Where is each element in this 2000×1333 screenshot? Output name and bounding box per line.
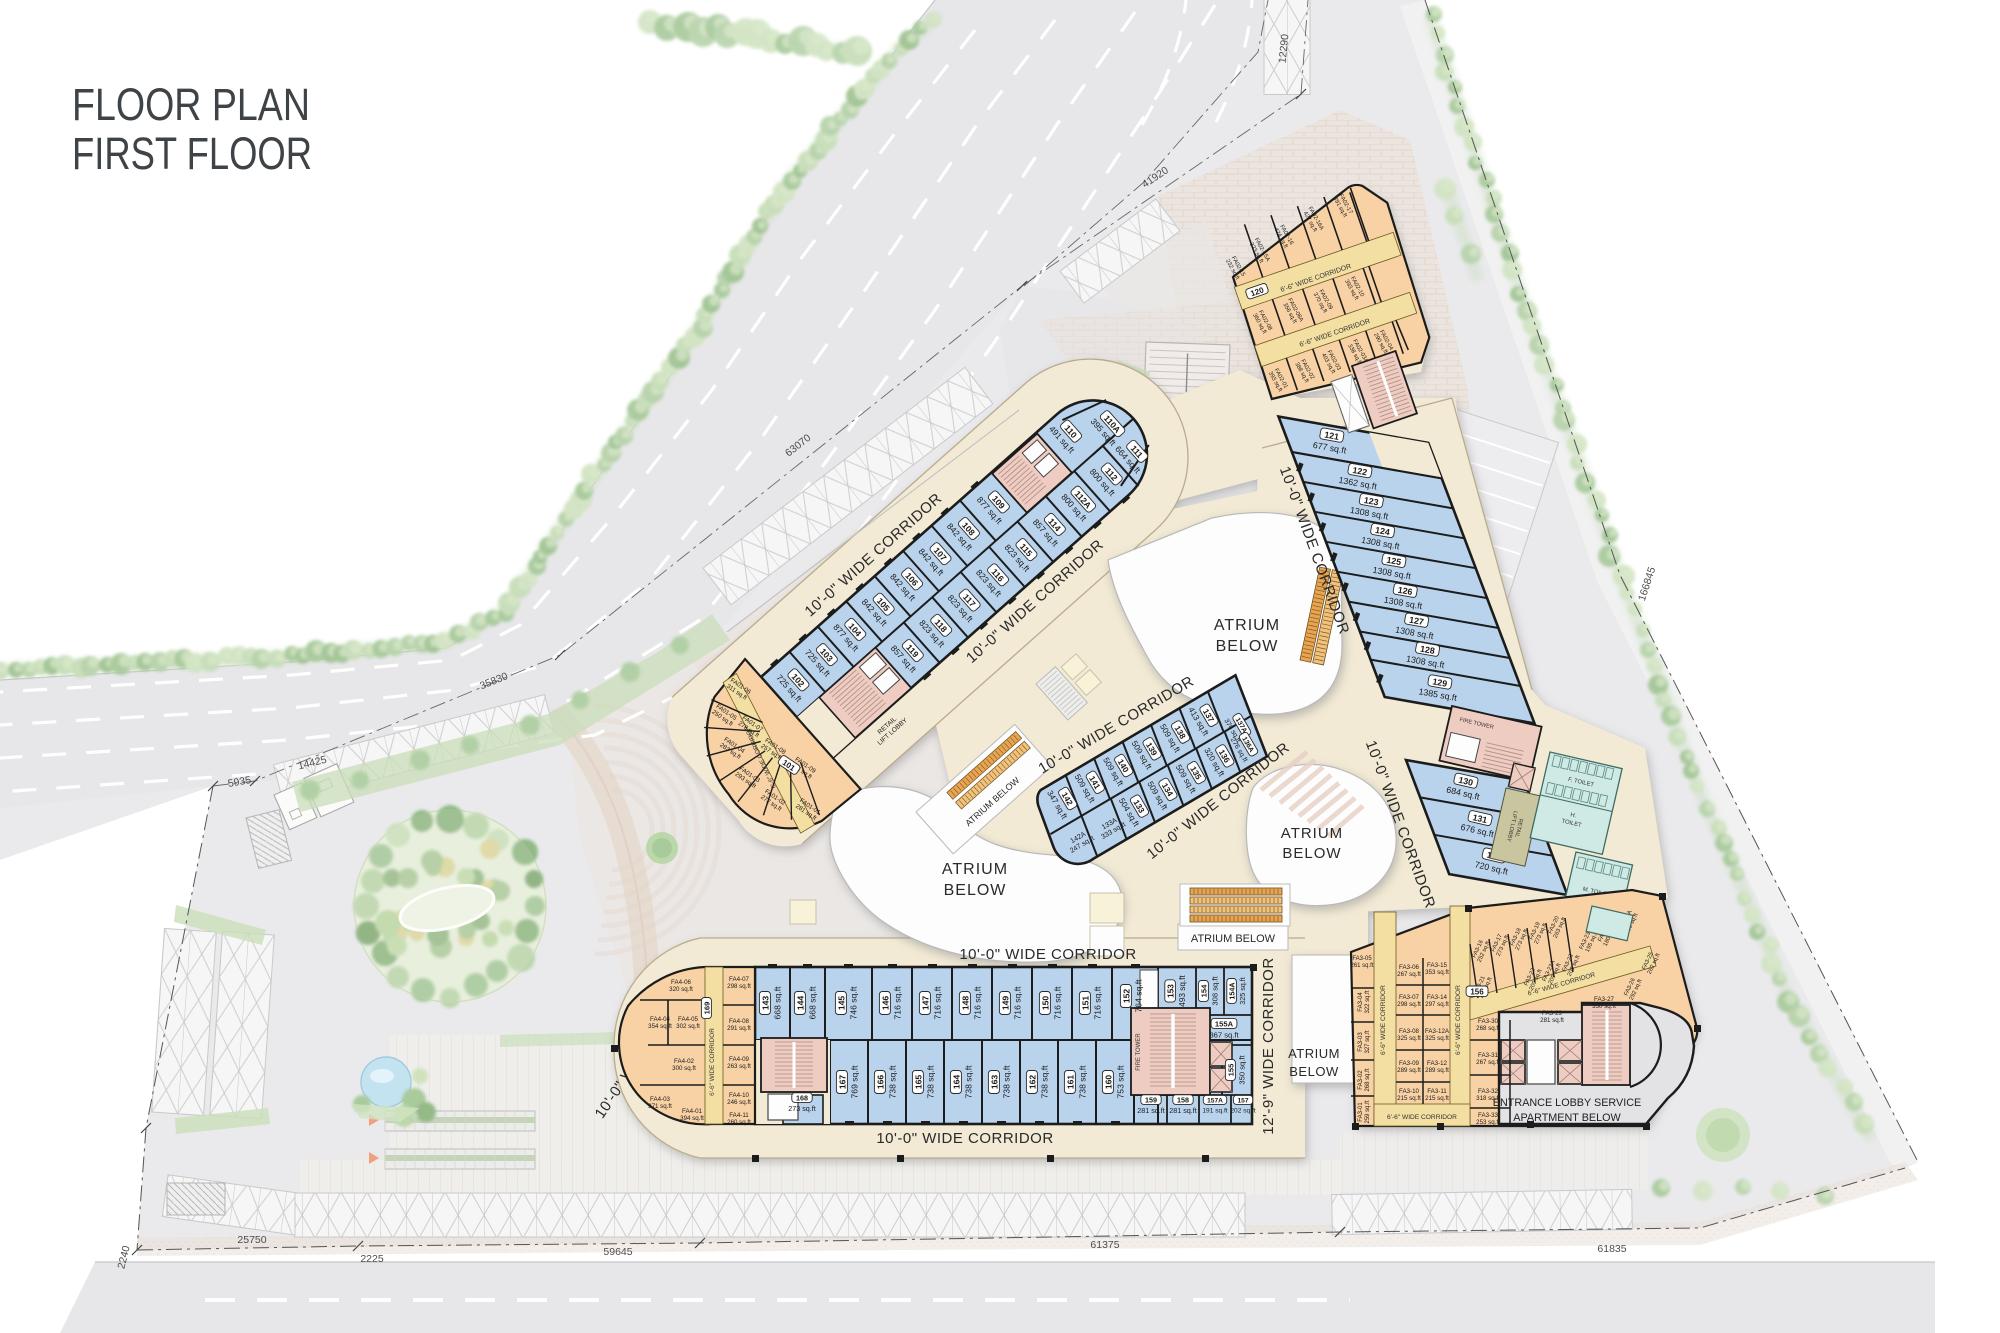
svg-text:297 sq.ft: 297 sq.ft (1425, 1001, 1449, 1008)
svg-text:155A: 155A (1215, 1019, 1234, 1028)
svg-text:FA3-14: FA3-14 (1427, 994, 1448, 1001)
svg-text:148: 148 (960, 996, 970, 1011)
svg-text:267 sq.ft: 267 sq.ft (1397, 971, 1421, 978)
svg-text:716 sq.ft: 716 sq.ft (972, 986, 982, 1020)
svg-text:FA3-15: FA3-15 (1427, 962, 1448, 969)
svg-text:FA3-32: FA3-32 (1478, 1088, 1499, 1095)
svg-text:268 sq.ft: 268 sq.ft (1365, 1068, 1371, 1091)
svg-text:668 sq.ft: 668 sq.ft (807, 986, 817, 1020)
svg-text:156: 156 (1470, 987, 1484, 996)
svg-text:668 sq.ft: 668 sq.ft (772, 986, 782, 1020)
svg-text:350 sq.ft: 350 sq.ft (1592, 1003, 1616, 1010)
svg-text:273 sq.ft: 273 sq.ft (788, 1104, 816, 1113)
svg-text:291 sq.ft: 291 sq.ft (727, 1025, 751, 1032)
svg-text:FA4-10: FA4-10 (729, 1092, 750, 1099)
svg-text:493 sq.ft: 493 sq.ft (1178, 975, 1187, 1007)
svg-text:157: 157 (1237, 1097, 1248, 1104)
svg-text:ATRIUM: ATRIUM (1281, 825, 1343, 842)
svg-text:738 sq.ft: 738 sq.ft (1001, 1065, 1011, 1099)
svg-text:769 sq.ft: 769 sq.ft (849, 1065, 859, 1099)
svg-text:10'-0" WIDE CORRIDOR: 10'-0" WIDE CORRIDOR (959, 946, 1136, 963)
svg-text:61835: 61835 (1597, 1243, 1626, 1255)
svg-text:BELOW: BELOW (1289, 1064, 1339, 1079)
svg-text:302 sq.ft: 302 sq.ft (676, 1023, 700, 1030)
svg-text:738 sq.ft: 738 sq.ft (1039, 1065, 1049, 1099)
svg-text:6'-6" WIDE CORRIDOR: 6'-6" WIDE CORRIDOR (1380, 985, 1387, 1055)
svg-text:158: 158 (1177, 1095, 1189, 1104)
svg-text:215 sq.ft: 215 sq.ft (1397, 1095, 1421, 1102)
svg-text:FA3-03: FA3-03 (1358, 1032, 1364, 1052)
svg-text:159: 159 (1145, 1095, 1157, 1104)
svg-text:353 sq.ft: 353 sq.ft (1425, 969, 1449, 976)
svg-text:716 sq.ft: 716 sq.ft (892, 986, 902, 1020)
svg-text:281 sq.ft: 281 sq.ft (1137, 1106, 1165, 1115)
svg-text:327 sq.ft: 327 sq.ft (1365, 1030, 1371, 1053)
svg-text:144: 144 (795, 996, 805, 1011)
svg-text:738 sq.ft: 738 sq.ft (925, 1065, 935, 1099)
svg-text:163: 163 (989, 1075, 999, 1090)
svg-text:FA3-01: FA3-01 (1358, 1102, 1364, 1122)
svg-text:746 sq.ft: 746 sq.ft (848, 986, 858, 1020)
svg-text:146: 146 (880, 996, 890, 1011)
svg-text:157A: 157A (1207, 1097, 1223, 1104)
svg-text:FIRE TOWER: FIRE TOWER (1136, 1033, 1142, 1071)
svg-text:FA4-08: FA4-08 (729, 1018, 750, 1025)
svg-text:FA4-05: FA4-05 (678, 1016, 699, 1023)
svg-text:6'-6" WIDE CORRIDOR: 6'-6" WIDE CORRIDOR (709, 1028, 716, 1096)
svg-text:FIRST FLOOR: FIRST FLOOR (72, 128, 312, 179)
svg-text:259 sq.ft: 259 sq.ft (1365, 1100, 1371, 1123)
svg-text:154A: 154A (1227, 982, 1236, 999)
svg-text:155: 155 (1226, 1063, 1235, 1076)
svg-text:716 sq.ft: 716 sq.ft (1012, 986, 1022, 1020)
svg-text:169: 169 (702, 1002, 711, 1015)
svg-text:367 sq.ft: 367 sq.ft (1209, 1030, 1239, 1039)
svg-text:716 sq.ft: 716 sq.ft (932, 986, 942, 1020)
svg-text:61375: 61375 (1090, 1239, 1119, 1251)
svg-text:281 sq.ft: 281 sq.ft (1169, 1106, 1197, 1115)
svg-text:150: 150 (1040, 996, 1050, 1011)
svg-text:151: 151 (1080, 996, 1090, 1011)
svg-text:753 sq.ft: 753 sq.ft (1115, 1065, 1125, 1099)
svg-text:160: 160 (1103, 1075, 1113, 1090)
svg-text:FA3-09: FA3-09 (1399, 1060, 1420, 1067)
svg-text:FA4-09: FA4-09 (729, 1056, 750, 1063)
svg-text:289 sq.ft: 289 sq.ft (1397, 1067, 1421, 1074)
svg-text:261 sq.ft: 261 sq.ft (1350, 963, 1373, 969)
svg-text:716 sq.ft: 716 sq.ft (1052, 986, 1062, 1020)
svg-text:FA3-27: FA3-27 (1594, 996, 1615, 1003)
svg-text:FA3-12A: FA3-12A (1425, 1028, 1450, 1035)
svg-text:149: 149 (1000, 996, 1010, 1011)
svg-text:FA3-04: FA3-04 (1358, 992, 1364, 1012)
svg-text:281 sq.ft: 281 sq.ft (1540, 1017, 1564, 1024)
svg-text:738 sq.ft: 738 sq.ft (963, 1065, 973, 1099)
svg-text:253 sq.ft: 253 sq.ft (1476, 1119, 1500, 1126)
svg-text:168: 168 (796, 1093, 808, 1102)
svg-text:260 sq.ft: 260 sq.ft (727, 1119, 751, 1126)
svg-text:BELOW: BELOW (1216, 638, 1279, 655)
svg-text:320 sq.ft: 320 sq.ft (669, 986, 693, 993)
svg-text:ATRIUM: ATRIUM (1214, 617, 1280, 634)
svg-text:325 sq.ft: 325 sq.ft (1397, 1035, 1421, 1042)
svg-text:143: 143 (760, 996, 770, 1011)
svg-text:6'-6" WIDE CORRIDOR: 6'-6" WIDE CORRIDOR (1455, 985, 1462, 1055)
svg-text:FA3-29: FA3-29 (1542, 1010, 1563, 1017)
svg-text:FLOOR PLAN: FLOOR PLAN (72, 79, 310, 130)
svg-text:161: 161 (1065, 1075, 1075, 1090)
svg-text:738 sq.ft: 738 sq.ft (887, 1065, 897, 1099)
svg-text:394 sq.ft: 394 sq.ft (680, 1115, 704, 1122)
svg-text:FA3-05: FA3-05 (1352, 956, 1372, 962)
svg-text:300 sq.ft: 300 sq.ft (672, 1065, 696, 1072)
svg-text:738 sq.ft: 738 sq.ft (1077, 1065, 1087, 1099)
svg-text:BELOW: BELOW (1282, 845, 1341, 862)
svg-text:ATRIUM BELOW: ATRIUM BELOW (1191, 933, 1276, 945)
svg-text:59645: 59645 (603, 1246, 632, 1258)
svg-text:153: 153 (1166, 984, 1175, 998)
svg-text:166: 166 (875, 1075, 885, 1090)
svg-text:12'-9" WIDE CORRIDOR: 12'-9" WIDE CORRIDOR (1260, 957, 1277, 1134)
svg-text:FA3-33: FA3-33 (1478, 1112, 1499, 1119)
svg-text:716 sq.ft: 716 sq.ft (1092, 986, 1102, 1020)
svg-text:263 sq.ft: 263 sq.ft (727, 1063, 751, 1070)
svg-text:202 sq.ft: 202 sq.ft (1230, 1107, 1255, 1114)
svg-text:764 sq.ft: 764 sq.ft (1133, 979, 1143, 1013)
svg-text:354 sq.ft: 354 sq.ft (648, 1023, 672, 1030)
svg-text:191 sq.ft: 191 sq.ft (1202, 1107, 1227, 1114)
svg-text:FA3-08: FA3-08 (1399, 1028, 1420, 1035)
svg-text:267 sq.ft: 267 sq.ft (1476, 1059, 1500, 1066)
svg-text:FA3-31: FA3-31 (1478, 1052, 1499, 1059)
svg-text:167: 167 (837, 1075, 847, 1090)
svg-text:FA3-10: FA3-10 (1399, 1088, 1420, 1095)
svg-text:268 sq.ft: 268 sq.ft (1476, 1025, 1500, 1032)
svg-text:154: 154 (1199, 984, 1208, 997)
svg-text:350 sq.ft: 350 sq.ft (1237, 1055, 1246, 1085)
svg-text:FA4-03: FA4-03 (650, 1096, 671, 1103)
svg-text:164: 164 (951, 1075, 961, 1090)
svg-text:165: 165 (913, 1075, 923, 1090)
svg-text:FA4-02: FA4-02 (674, 1058, 695, 1065)
svg-text:FA3-11: FA3-11 (1427, 1088, 1447, 1095)
svg-text:FA4-04: FA4-04 (650, 1016, 671, 1023)
svg-text:ENTRANCE LOBBY SERVICE: ENTRANCE LOBBY SERVICE (1493, 1097, 1641, 1109)
svg-text:298 sq.ft: 298 sq.ft (727, 983, 751, 990)
svg-text:10'-0" WIDE CORRIDOR: 10'-0" WIDE CORRIDOR (876, 1130, 1053, 1147)
svg-text:FA4-07: FA4-07 (729, 976, 750, 983)
svg-text:FA4-06: FA4-06 (671, 979, 692, 986)
svg-text:FA4-01: FA4-01 (682, 1108, 703, 1115)
svg-text:6'-6" WIDE CORRIDOR: 6'-6" WIDE CORRIDOR (1387, 1114, 1457, 1121)
svg-text:322 sq.ft: 322 sq.ft (1365, 990, 1371, 1013)
svg-text:FA3-12: FA3-12 (1427, 1060, 1448, 1067)
svg-text:FA4-11: FA4-11 (729, 1112, 749, 1119)
svg-text:147: 147 (920, 996, 930, 1011)
svg-text:152: 152 (1121, 989, 1131, 1004)
svg-text:215 sq.ft: 215 sq.ft (1425, 1095, 1449, 1102)
svg-text:FA3-30: FA3-30 (1478, 1018, 1499, 1025)
svg-text:ATRIUM: ATRIUM (942, 861, 1008, 878)
svg-text:25750: 25750 (237, 1234, 266, 1246)
svg-text:FA3-06: FA3-06 (1399, 964, 1420, 971)
svg-text:308 sq.ft: 308 sq.ft (1210, 976, 1219, 1006)
svg-text:145: 145 (836, 996, 846, 1011)
svg-text:FA3-02: FA3-02 (1358, 1070, 1364, 1090)
svg-text:325 sq.ft: 325 sq.ft (1238, 977, 1247, 1005)
svg-text:371 sq.ft: 371 sq.ft (648, 1103, 672, 1110)
svg-text:ATRIUM: ATRIUM (1288, 1046, 1340, 1061)
svg-text:289 sq.ft: 289 sq.ft (1425, 1067, 1449, 1074)
svg-text:2225: 2225 (360, 1253, 384, 1265)
svg-text:246 sq.ft: 246 sq.ft (727, 1099, 751, 1106)
svg-text:FA3-07: FA3-07 (1399, 994, 1420, 1001)
svg-text:298 sq.ft: 298 sq.ft (1397, 1001, 1421, 1008)
svg-text:162: 162 (1027, 1075, 1037, 1090)
svg-text:325 sq.ft: 325 sq.ft (1425, 1035, 1449, 1042)
svg-text:BELOW: BELOW (944, 882, 1007, 899)
